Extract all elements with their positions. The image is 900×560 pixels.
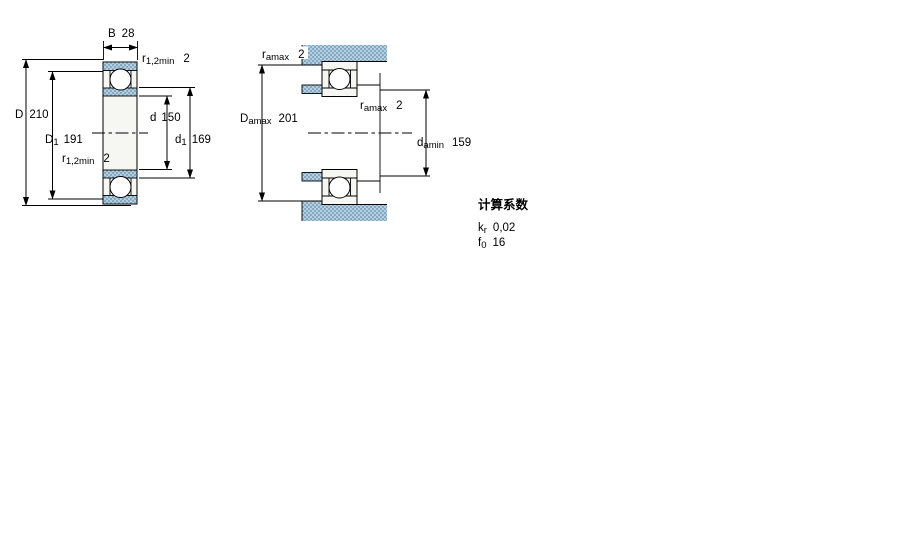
dim-label-Damax: Damax201 <box>240 113 298 127</box>
factor-subscript: 0 <box>481 240 486 251</box>
shaft-shoulder-bottom <box>302 173 322 182</box>
dim-value: 169 <box>192 134 211 146</box>
calculation-factors-block: 计算系数 kr0,02 f016 <box>478 197 529 251</box>
shaft-shoulder-top <box>302 85 322 94</box>
factor-value: 16 <box>493 237 506 249</box>
left-bearing-body <box>92 62 148 204</box>
dim-symbol: D <box>15 109 23 121</box>
dim-value: 191 <box>64 134 83 146</box>
ball-top <box>110 69 131 90</box>
dim-symbol: D <box>45 134 53 146</box>
factor-row-f0: f016 <box>478 237 505 251</box>
dim-value: 2 <box>183 53 189 65</box>
right-bearing-body <box>308 62 412 205</box>
right-view-abutment-section: ramax2 Damax201 ramax2 damin159 <box>240 45 471 221</box>
calculation-factors-title: 计算系数 <box>478 197 529 212</box>
dim-subscript: 1,2min <box>66 156 95 167</box>
dim-subscript: 1 <box>53 137 58 148</box>
dim-symbol: B <box>108 28 116 40</box>
ball-bottom <box>329 177 350 198</box>
dim-label-r-top: r1,2min2 <box>142 53 190 67</box>
dim-label-damin: damin159 <box>417 137 471 151</box>
dim-value: 2 <box>298 49 304 61</box>
dim-label-B: B28 <box>108 28 134 40</box>
dim-value: 210 <box>29 109 48 121</box>
dim-label-d1: d1169 <box>175 134 211 148</box>
dim-label-ra-mid: ramax2 <box>360 100 402 114</box>
dim-label-D: D210 <box>15 109 49 121</box>
dim-label-D1: D1191 <box>45 134 83 148</box>
dim-value: 2 <box>103 153 109 165</box>
dim-value: 2 <box>396 100 402 112</box>
left-view-bearing-section: B28 r1,2min2 D210 D1191 d150 d1169 r1,2m… <box>15 28 211 206</box>
factor-row-kr: kr0,02 <box>478 222 515 236</box>
dim-value: 28 <box>122 28 135 40</box>
bearing-drawing-page: B28 r1,2min2 D210 D1191 d150 d1169 r1,2m… <box>0 0 900 560</box>
dim-value: 201 <box>279 113 298 125</box>
dim-subscript: 1 <box>181 137 186 148</box>
ball-top <box>329 69 350 90</box>
dim-symbol: D <box>240 113 248 125</box>
dim-subscript: amax <box>248 116 271 127</box>
dim-label-ra-top: ramax2 <box>262 49 304 63</box>
dim-symbol: d <box>150 112 156 124</box>
factor-subscript: r <box>484 225 487 236</box>
dim-value: 159 <box>452 137 471 149</box>
dim-subscript: amin <box>423 140 444 151</box>
dim-label-d: d150 <box>150 112 181 124</box>
dim-subscript: amax <box>364 103 387 114</box>
dim-subscript: 1,2min <box>146 56 175 67</box>
ball-bottom <box>110 177 131 198</box>
factor-value: 0,02 <box>493 222 515 234</box>
dim-value: 150 <box>161 112 180 124</box>
bearing-drawing-svg: B28 r1,2min2 D210 D1191 d150 d1169 r1,2m… <box>0 0 900 560</box>
dim-subscript: amax <box>266 52 289 63</box>
